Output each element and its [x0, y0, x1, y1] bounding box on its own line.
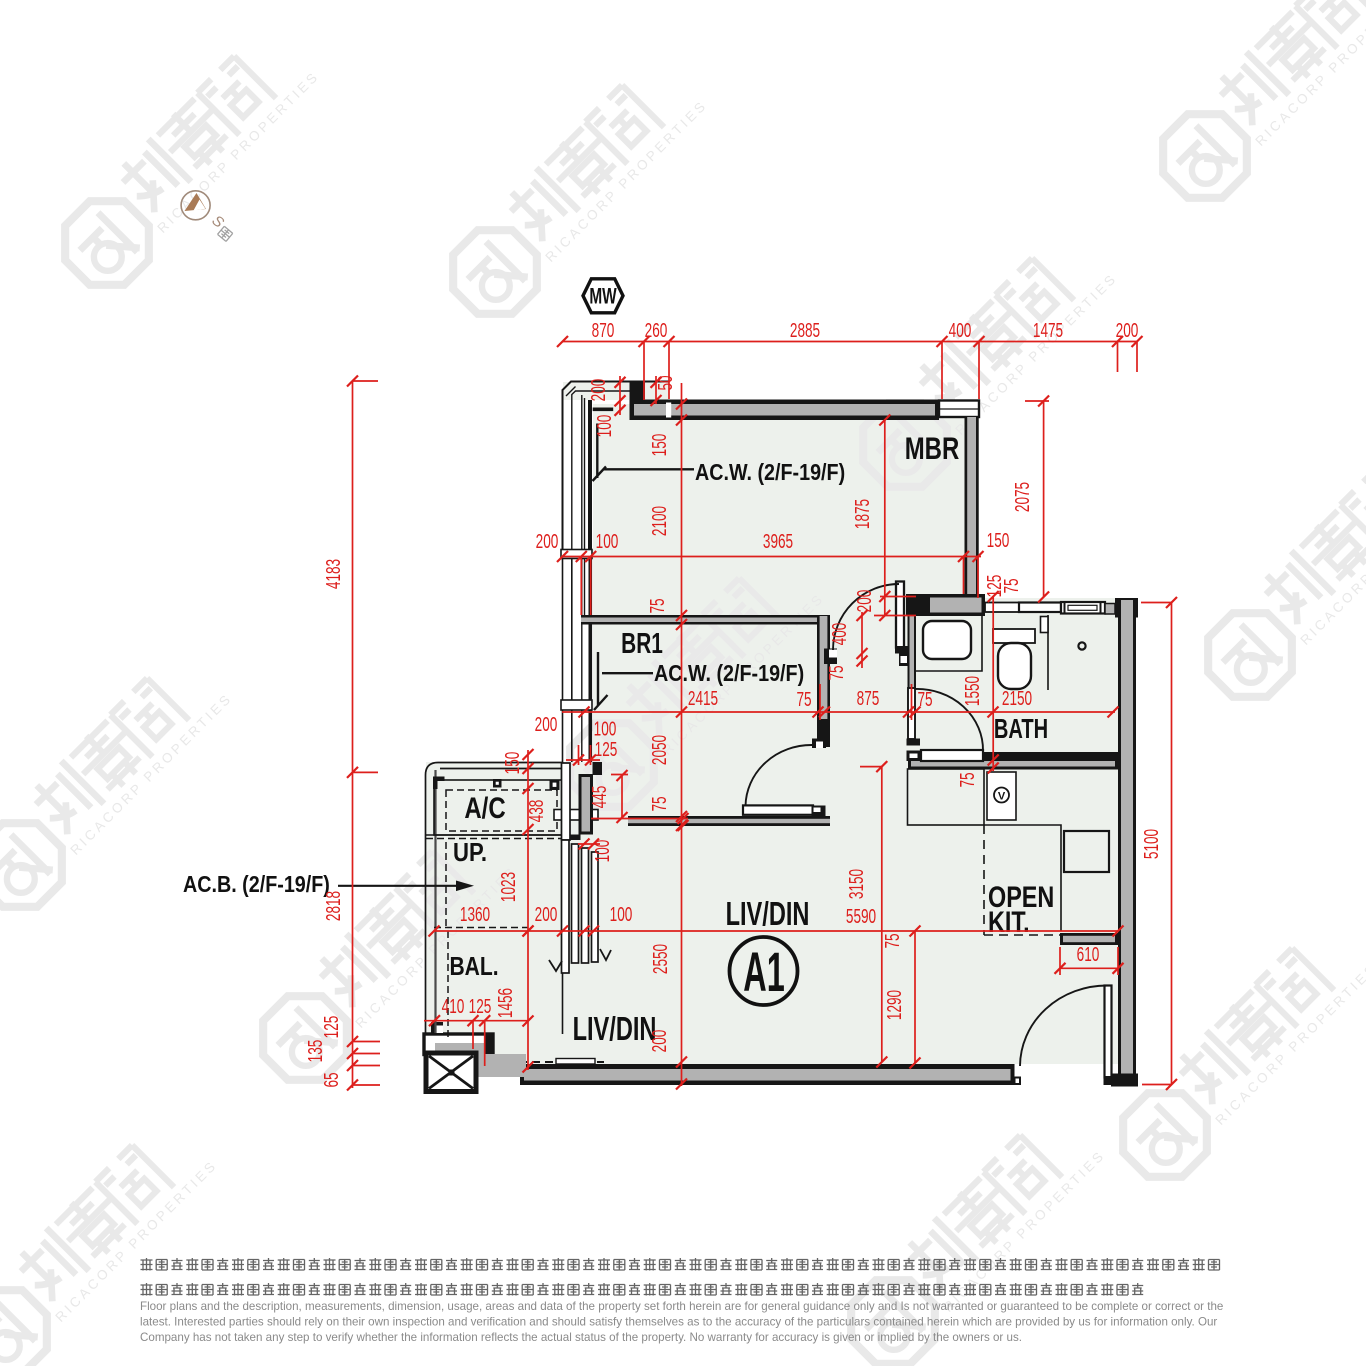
svg-text:400: 400	[949, 319, 972, 341]
svg-text:5590: 5590	[846, 905, 876, 927]
svg-text:A/C: A/C	[464, 790, 505, 824]
svg-text:4183: 4183	[322, 559, 344, 589]
svg-text:400: 400	[828, 623, 850, 646]
svg-text:1475: 1475	[1033, 319, 1063, 341]
svg-text:125: 125	[320, 1016, 342, 1039]
svg-text:150: 150	[501, 752, 523, 775]
svg-text:125: 125	[469, 995, 492, 1017]
svg-text:410: 410	[442, 995, 465, 1017]
svg-text:3150: 3150	[845, 869, 867, 899]
svg-text:150: 150	[648, 434, 670, 457]
svg-text:MW: MW	[589, 285, 616, 309]
svg-text:BAL.: BAL.	[449, 953, 498, 982]
svg-text:75: 75	[881, 933, 903, 948]
svg-text:50: 50	[654, 375, 676, 390]
svg-text:875: 875	[857, 687, 880, 709]
svg-text:A1: A1	[743, 941, 785, 1003]
svg-text:V: V	[998, 791, 1006, 803]
svg-text:65: 65	[320, 1072, 342, 1087]
svg-text:200: 200	[648, 1030, 670, 1053]
svg-text:S: S	[208, 212, 227, 231]
svg-text:latest. Interested parties sho: latest. Interested parties should rely o…	[140, 1316, 1217, 1329]
svg-text:AC.W. (2/F-19/F): AC.W. (2/F-19/F)	[695, 458, 845, 485]
svg-text:3965: 3965	[763, 530, 793, 552]
svg-text:Company has not taken any step: Company has not taken any step to verify…	[140, 1331, 1022, 1344]
svg-text:2100: 2100	[648, 506, 670, 536]
svg-text:125: 125	[595, 738, 618, 760]
svg-text:MBR: MBR	[905, 431, 960, 466]
svg-text:AC.W. (2/F-19/F): AC.W. (2/F-19/F)	[654, 659, 804, 686]
svg-text:BR1: BR1	[621, 628, 663, 660]
svg-text:100: 100	[594, 718, 617, 740]
svg-text:BATH: BATH	[994, 714, 1048, 745]
svg-text:200: 200	[535, 713, 558, 735]
svg-text:200: 200	[536, 530, 559, 552]
svg-text:2818: 2818	[322, 891, 344, 921]
svg-text:610: 610	[1077, 943, 1100, 965]
svg-text:1550: 1550	[961, 676, 983, 706]
svg-text:1875: 1875	[851, 499, 873, 529]
svg-text:200: 200	[1116, 319, 1139, 341]
svg-text:75: 75	[796, 688, 811, 710]
svg-text:AC.B. (2/F-19/F): AC.B. (2/F-19/F)	[183, 870, 330, 897]
svg-text:2885: 2885	[790, 319, 820, 341]
svg-text:150: 150	[987, 529, 1010, 551]
svg-text:2050: 2050	[648, 735, 670, 765]
svg-text:75: 75	[646, 598, 668, 613]
svg-text:75: 75	[648, 796, 670, 811]
svg-text:1023: 1023	[497, 872, 519, 902]
svg-text:LIV/DIN: LIV/DIN	[726, 896, 810, 933]
svg-text:445: 445	[588, 786, 610, 809]
svg-text:200: 200	[853, 590, 875, 613]
svg-text:LIV/DIN: LIV/DIN	[573, 1011, 657, 1048]
svg-text:200: 200	[587, 379, 609, 402]
svg-text:438: 438	[525, 800, 547, 823]
svg-text:100: 100	[610, 903, 633, 925]
svg-text:2550: 2550	[649, 944, 671, 974]
svg-text:200: 200	[535, 903, 558, 925]
svg-text:1360: 1360	[460, 903, 490, 925]
svg-text:75: 75	[956, 772, 978, 787]
svg-text:2415: 2415	[688, 687, 718, 709]
svg-text:Floor plans and the descriptio: Floor plans and the description, measure…	[140, 1300, 1223, 1313]
svg-text:2075: 2075	[1011, 482, 1033, 512]
svg-text:100: 100	[591, 840, 613, 863]
svg-text:2150: 2150	[1002, 687, 1032, 709]
svg-text:75: 75	[825, 665, 847, 680]
svg-text:75: 75	[1000, 578, 1022, 593]
svg-text:UP.: UP.	[453, 838, 487, 867]
svg-text:1290: 1290	[883, 990, 905, 1020]
svg-text:KIT.: KIT.	[988, 905, 1030, 938]
svg-text:100: 100	[596, 530, 619, 552]
svg-text:100: 100	[593, 415, 615, 438]
svg-text:260: 260	[645, 319, 668, 341]
svg-text:5100: 5100	[1140, 829, 1162, 859]
svg-text:135: 135	[304, 1040, 326, 1063]
svg-text:75: 75	[917, 688, 932, 710]
svg-text:1456: 1456	[494, 988, 516, 1018]
svg-text:870: 870	[592, 319, 615, 341]
